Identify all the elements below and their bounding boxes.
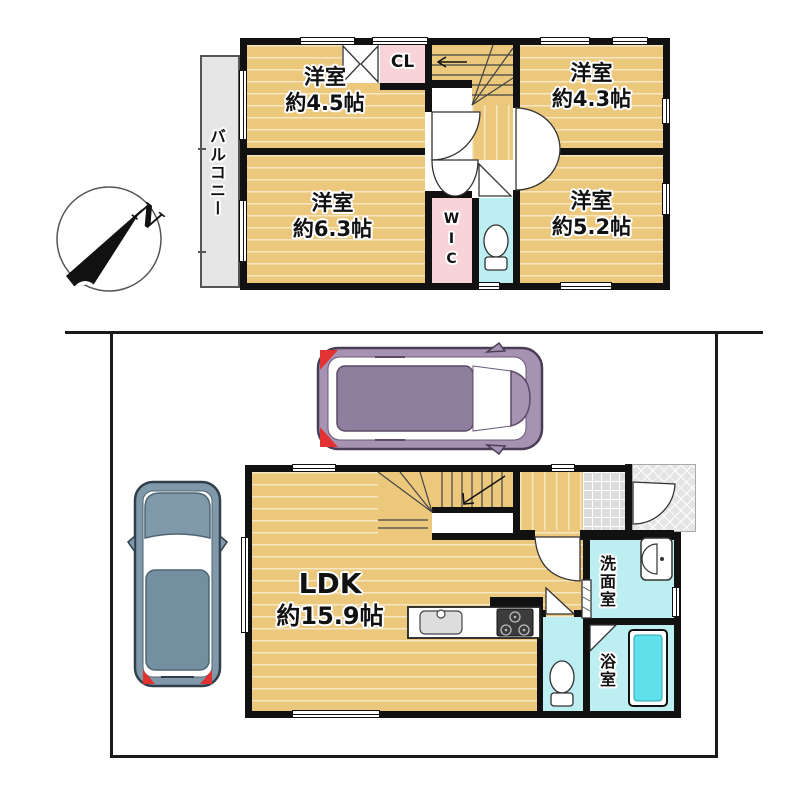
- entry-door-arc: [633, 482, 675, 524]
- bathroom-label: 浴室: [596, 642, 616, 700]
- window: [612, 37, 648, 45]
- balcony-door: [239, 70, 247, 140]
- window: [292, 710, 380, 718]
- door-arc: [535, 537, 580, 581]
- balcony-rail-tick: [198, 148, 206, 150]
- toilet-icon-1f: [550, 661, 574, 706]
- window: [478, 282, 500, 290]
- door-arc: [516, 108, 560, 190]
- door-leaf: [479, 164, 511, 196]
- window: [551, 464, 575, 472]
- balcony-door: [239, 200, 247, 262]
- car-side-icon: [126, 478, 229, 690]
- closet-label: CL: [380, 52, 425, 73]
- window: [662, 98, 670, 124]
- compass-icon: N: [52, 180, 167, 298]
- room-label-6_3: 洋室約6.3帖: [250, 190, 415, 243]
- car-top-icon: [315, 342, 545, 455]
- window: [372, 37, 428, 45]
- room-label-4_5: 洋室約4.5帖: [250, 64, 400, 117]
- stairs-down-arrow-1f: [463, 476, 505, 504]
- toilet-icon-2f: [484, 225, 508, 270]
- window: [300, 37, 355, 45]
- wic-label: WIC: [442, 202, 460, 280]
- balcony-label: バルコニー: [206, 88, 226, 258]
- window: [672, 587, 680, 617]
- balcony-rail-tick: [198, 251, 206, 253]
- door-arc: [432, 112, 480, 160]
- door-leaf: [546, 588, 574, 614]
- window: [560, 282, 612, 290]
- washroom-label: 洗面室: [596, 542, 616, 622]
- room-label-4_3: 洋室約4.3帖: [520, 60, 663, 113]
- ldk-label: LDK 約15.9帖: [230, 566, 430, 631]
- bathtub-icon: [629, 630, 667, 706]
- window: [540, 37, 590, 45]
- door-arc: [432, 160, 478, 196]
- window: [662, 183, 670, 215]
- window: [292, 464, 336, 472]
- room-label-5_2: 洋室約5.2帖: [520, 188, 663, 241]
- floor-plan: N バルコニー: [0, 0, 800, 797]
- sink-icon: [641, 538, 672, 580]
